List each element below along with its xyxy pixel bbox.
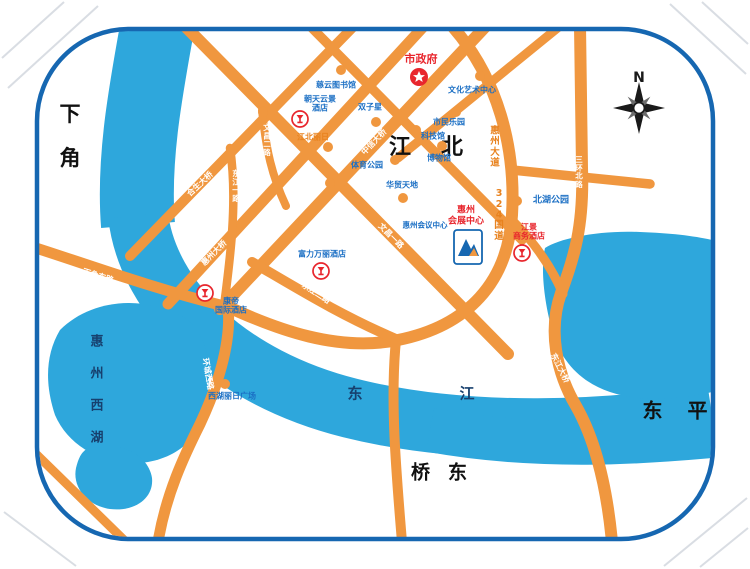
wenchang-2nd-rd-road-label: 路 bbox=[263, 147, 271, 157]
sanhuan-north-rd-road-label: 路 bbox=[575, 179, 583, 189]
g324-road-label: 4 bbox=[496, 210, 503, 221]
wenchang-1st-rd-road-label: 文昌一路 bbox=[377, 221, 407, 251]
huizhou-avenue-road-label: 州 bbox=[489, 136, 500, 147]
west-lake-water bbox=[48, 303, 209, 509]
map-canvas: 合生大桥惠州大桥中信大桥文昌一路文昌二路东江一路东江二路下角东路环城西路三环北路… bbox=[0, 0, 750, 569]
g324-road-label: 国 bbox=[494, 220, 504, 231]
hesheng-bridge-road-label: 合生大桥 bbox=[184, 168, 216, 199]
map-graphics: 合生大桥惠州大桥中信大桥文昌一路文昌二路东江一路东江二路下角东路环城西路三环北路… bbox=[0, 0, 750, 569]
huizhou-avenue-road-label: 大 bbox=[490, 146, 500, 158]
huizhou-avenue-road-label: 道 bbox=[490, 156, 500, 168]
g324-road-label: 3 bbox=[496, 188, 503, 199]
huizhou-bridge-road-label: 惠州大桥 bbox=[199, 237, 229, 267]
dongjiang-1st-rd-road-label: 路 bbox=[232, 193, 240, 203]
compass-icon bbox=[613, 82, 665, 134]
g324-road-label: 2 bbox=[496, 199, 503, 210]
huizhou-avenue-road-label: 惠 bbox=[490, 125, 500, 137]
g324-road-label: 道 bbox=[494, 230, 504, 242]
compass-north-label: N bbox=[633, 70, 645, 86]
